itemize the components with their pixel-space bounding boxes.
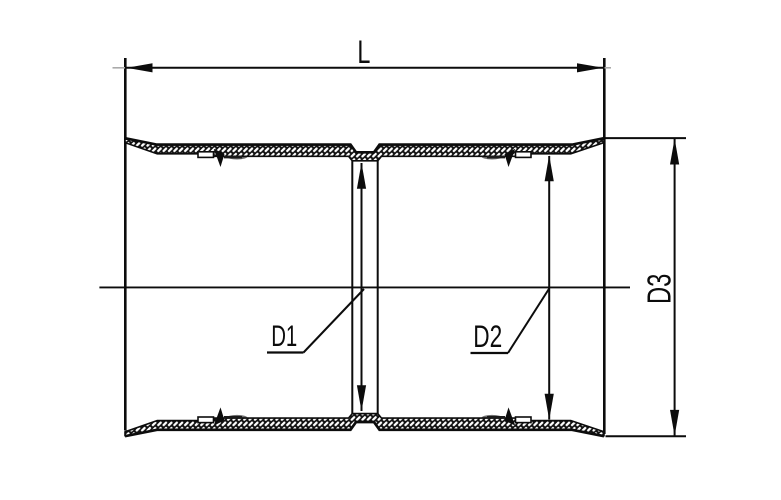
svg-text:D2: D2 [473, 318, 502, 354]
svg-text:D1: D1 [271, 320, 297, 353]
svg-text:D3: D3 [642, 274, 679, 304]
svg-text:L: L [357, 33, 370, 70]
